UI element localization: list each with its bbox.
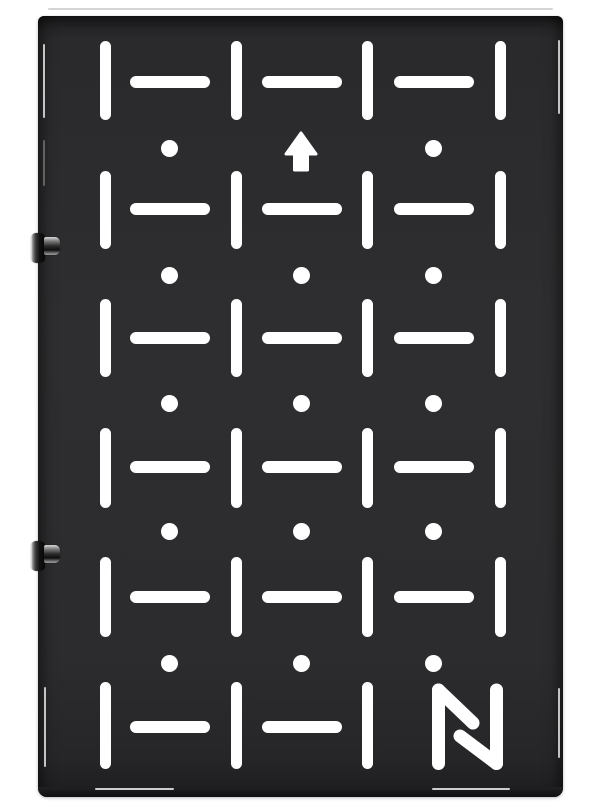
vertical-slot-cutout	[495, 171, 506, 249]
vertical-slot-cutout	[495, 41, 506, 120]
vertical-slot-cutout	[231, 682, 242, 769]
round-hole-cutout	[161, 395, 178, 412]
vertical-slot-cutout	[495, 299, 506, 377]
round-hole-cutout	[161, 523, 178, 540]
panel-back-edge-line	[48, 8, 553, 10]
mounting-bolt-head	[31, 233, 45, 263]
vertical-slot-cutout	[100, 299, 111, 377]
vertical-slot-cutout	[231, 557, 242, 637]
round-hole-cutout	[425, 655, 442, 672]
vertical-slot-cutout	[362, 41, 373, 120]
vertical-slot-cutout	[231, 171, 242, 249]
mounting-bolt-pin	[44, 545, 60, 563]
vertical-slot-cutout	[362, 557, 373, 637]
horizontal-slot-cutout	[130, 76, 210, 88]
up-arrow-icon	[284, 131, 318, 172]
vertical-slot-cutout	[100, 557, 111, 637]
round-hole-cutout	[161, 267, 178, 284]
vertical-slot-cutout	[100, 428, 111, 508]
horizontal-slot-cutout	[130, 591, 210, 603]
horizontal-slot-cutout	[130, 332, 210, 344]
edge-highlight-line	[558, 40, 560, 114]
edge-highlight-line	[44, 687, 46, 767]
vertical-slot-cutout	[495, 557, 506, 637]
vertical-slot-cutout	[100, 171, 111, 249]
round-hole-cutout	[425, 395, 442, 412]
round-hole-cutout	[425, 267, 442, 284]
horizontal-slot-cutout	[262, 332, 342, 344]
round-hole-cutout	[293, 655, 310, 672]
vertical-slot-cutout	[231, 428, 242, 508]
horizontal-slot-cutout	[262, 76, 342, 88]
vertical-slot-cutout	[495, 428, 506, 508]
horizontal-slot-cutout	[130, 461, 210, 473]
horizontal-slot-cutout	[262, 461, 342, 473]
mounting-bolt-head	[31, 541, 45, 571]
horizontal-slot-cutout	[394, 332, 474, 344]
vertical-slot-cutout	[362, 171, 373, 249]
horizontal-slot-cutout	[394, 203, 474, 215]
vertical-slot-cutout	[231, 299, 242, 377]
edge-highlight-line	[43, 44, 45, 118]
mounting-bolt-pin	[44, 237, 60, 255]
horizontal-slot-cutout	[262, 203, 342, 215]
round-hole-cutout	[293, 267, 310, 284]
horizontal-slot-cutout	[394, 76, 474, 88]
vertical-slot-cutout	[100, 682, 111, 769]
round-hole-cutout	[161, 140, 178, 157]
product-photo	[0, 0, 600, 810]
round-hole-cutout	[425, 523, 442, 540]
edge-highlight-line	[95, 788, 174, 790]
round-hole-cutout	[293, 395, 310, 412]
round-hole-cutout	[293, 523, 310, 540]
vertical-slot-cutout	[362, 299, 373, 377]
horizontal-slot-cutout	[130, 721, 210, 733]
edge-highlight-line	[558, 688, 560, 758]
edge-highlight-line	[43, 140, 45, 186]
horizontal-slot-cutout	[262, 591, 342, 603]
mounting-panel	[38, 16, 563, 797]
n-logo-icon	[425, 676, 515, 776]
vertical-slot-cutout	[362, 682, 373, 769]
vertical-slot-cutout	[231, 41, 242, 120]
horizontal-slot-cutout	[130, 203, 210, 215]
round-hole-cutout	[425, 140, 442, 157]
edge-highlight-line	[432, 788, 510, 790]
horizontal-slot-cutout	[394, 461, 474, 473]
vertical-slot-cutout	[100, 41, 111, 120]
round-hole-cutout	[161, 655, 178, 672]
horizontal-slot-cutout	[262, 721, 342, 733]
vertical-slot-cutout	[362, 428, 373, 508]
horizontal-slot-cutout	[394, 591, 474, 603]
